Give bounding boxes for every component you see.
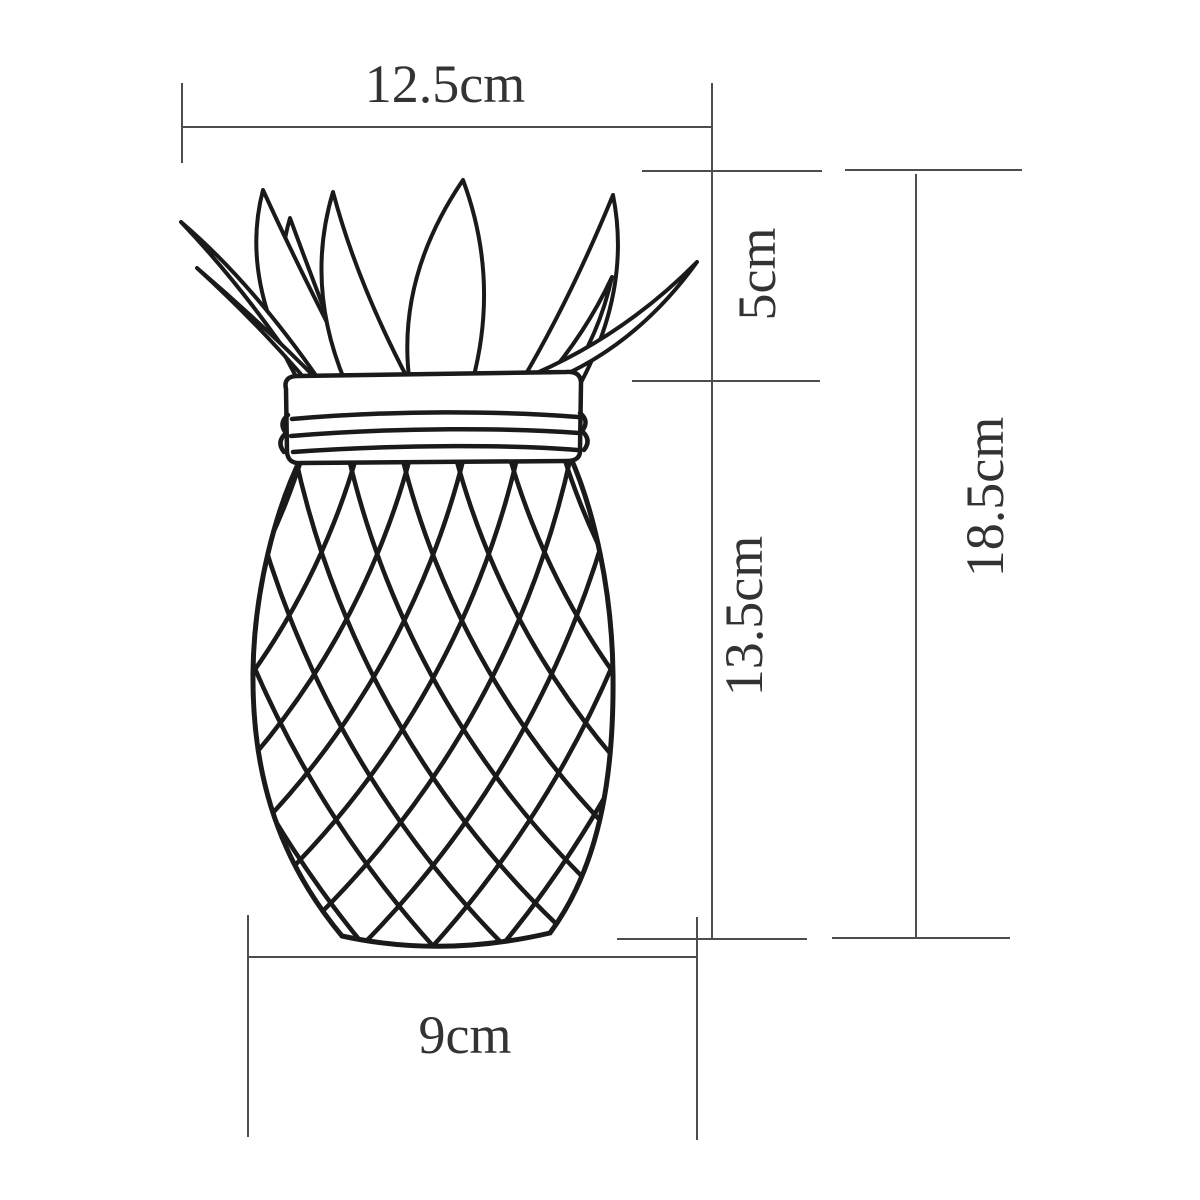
dim-label-top-width: 12.5cm	[365, 57, 525, 111]
jar-lid-band	[280, 372, 587, 463]
dim-line-base-width	[248, 956, 697, 958]
dim-tick-base-right	[696, 917, 698, 1140]
dim-tick-crown-top-outer	[845, 169, 1022, 171]
leaf-center	[407, 180, 484, 385]
dim-tick-top-left	[181, 83, 183, 163]
dim-tick-base-level-inner	[617, 938, 807, 940]
dimension-diagram: 12.5cm 5cm 13.5cm 18.5cm 9cm	[0, 0, 1200, 1200]
dim-tick-base-left	[247, 915, 249, 1137]
dim-tick-base-level-outer	[832, 937, 1010, 939]
dim-line-total-height	[915, 174, 917, 938]
dim-tick-crown-top-inner	[642, 170, 822, 172]
pineapple-jar-illustration	[170, 160, 730, 960]
dim-label-body-height: 13.5cm	[717, 536, 771, 696]
dim-label-crown-height: 5cm	[730, 228, 784, 321]
crown-leaves	[181, 180, 697, 401]
dim-label-total-height: 18.5cm	[958, 417, 1012, 577]
dim-tick-rim-level	[632, 380, 820, 382]
dim-line-crown-and-body	[711, 83, 713, 939]
dim-label-base-width: 9cm	[419, 1008, 512, 1062]
dim-line-top-width	[182, 126, 711, 128]
